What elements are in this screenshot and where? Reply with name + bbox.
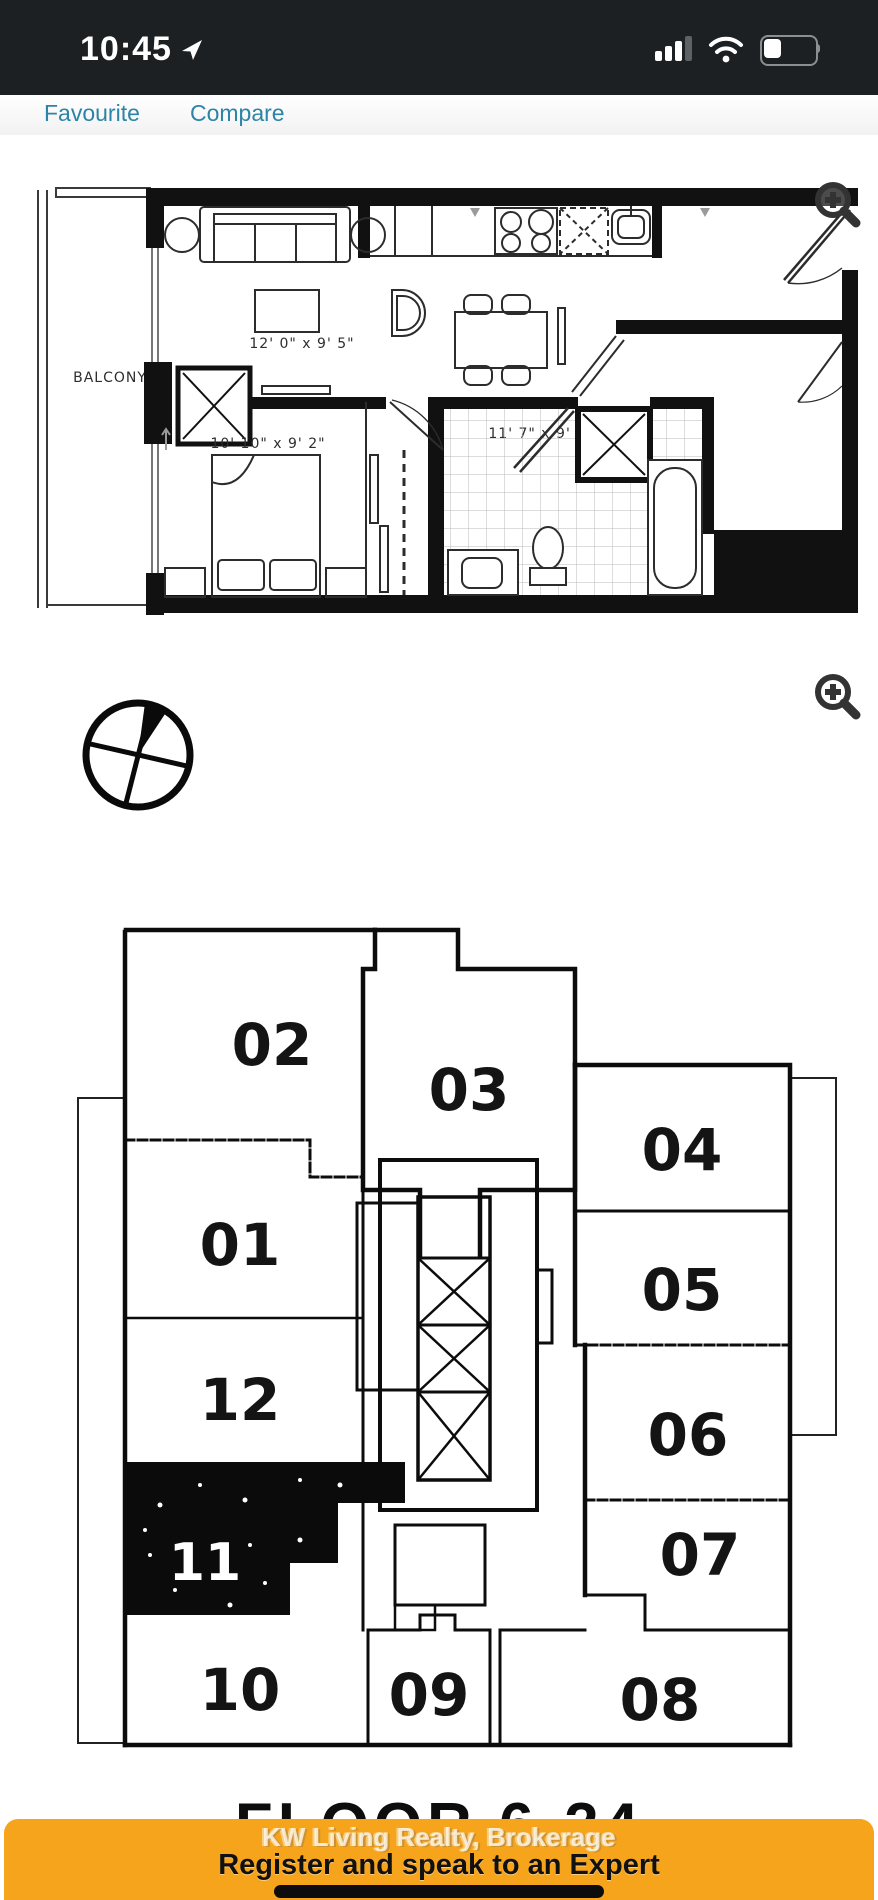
keyplan-walls bbox=[125, 930, 790, 1745]
status-bar: 10:45 bbox=[0, 0, 878, 95]
unit-number-03: 03 bbox=[429, 1056, 510, 1124]
clock: 10:45 bbox=[80, 30, 204, 69]
battery-icon bbox=[760, 35, 820, 62]
mobile-screen: 10:45 Favourite Compare bbox=[0, 0, 878, 1900]
keyplan-image[interactable]: 11 02 03 04 01 05 12 06 07 10 09 08 bbox=[0, 915, 878, 1760]
unit-number-09: 09 bbox=[389, 1661, 470, 1729]
unit-number-07: 07 bbox=[660, 1521, 741, 1589]
unit-number-04: 04 bbox=[642, 1116, 723, 1184]
unit-number-12: 12 bbox=[200, 1366, 281, 1434]
home-indicator bbox=[274, 1885, 604, 1898]
unit-number-11: 11 bbox=[169, 1533, 241, 1593]
unit-floorplan-image[interactable]: BALCONY bbox=[0, 150, 878, 650]
balcony-outline bbox=[38, 188, 150, 608]
balcony-label: BALCONY bbox=[73, 370, 147, 386]
magnifier-plus-icon bbox=[818, 677, 856, 715]
floorplan-zoom-button[interactable] bbox=[808, 176, 866, 234]
compass-rose-icon bbox=[78, 695, 198, 815]
unit-number-08: 08 bbox=[620, 1666, 701, 1734]
bathroom bbox=[444, 408, 702, 595]
keyplan-zoom-button[interactable] bbox=[808, 668, 866, 726]
location-arrow-icon bbox=[180, 38, 204, 62]
unit-number-06: 06 bbox=[648, 1401, 729, 1469]
cta-banner[interactable]: KW Living Realty, Brokerage Register and… bbox=[4, 1819, 874, 1900]
hall-door bbox=[572, 336, 842, 402]
register-cta[interactable]: Register and speak to an Expert bbox=[4, 1850, 874, 1880]
elevator-core bbox=[357, 1160, 552, 1630]
bedroom-dimension: 10' 10" x 9' 2" bbox=[210, 436, 325, 452]
time-text: 10:45 bbox=[80, 30, 172, 69]
unit-number-05: 05 bbox=[642, 1256, 723, 1324]
unit-number-02: 02 bbox=[232, 1011, 313, 1079]
living-dimension: 12' 0" x 9' 5" bbox=[249, 336, 354, 352]
brokerage-watermark: KW Living Realty, Brokerage bbox=[4, 1824, 874, 1850]
magnifier-plus-icon bbox=[818, 185, 856, 223]
status-icons bbox=[655, 33, 820, 63]
favourite-link[interactable]: Favourite bbox=[44, 100, 140, 127]
action-link-bar: Favourite Compare bbox=[0, 95, 878, 135]
laundry-closet bbox=[178, 368, 250, 444]
compare-link[interactable]: Compare bbox=[190, 100, 285, 127]
wifi-icon bbox=[706, 33, 746, 63]
unit-number-10: 10 bbox=[200, 1656, 281, 1724]
unit-number-01: 01 bbox=[200, 1211, 281, 1279]
kitchen-counter bbox=[370, 206, 652, 256]
cellular-signal-icon bbox=[655, 35, 692, 61]
